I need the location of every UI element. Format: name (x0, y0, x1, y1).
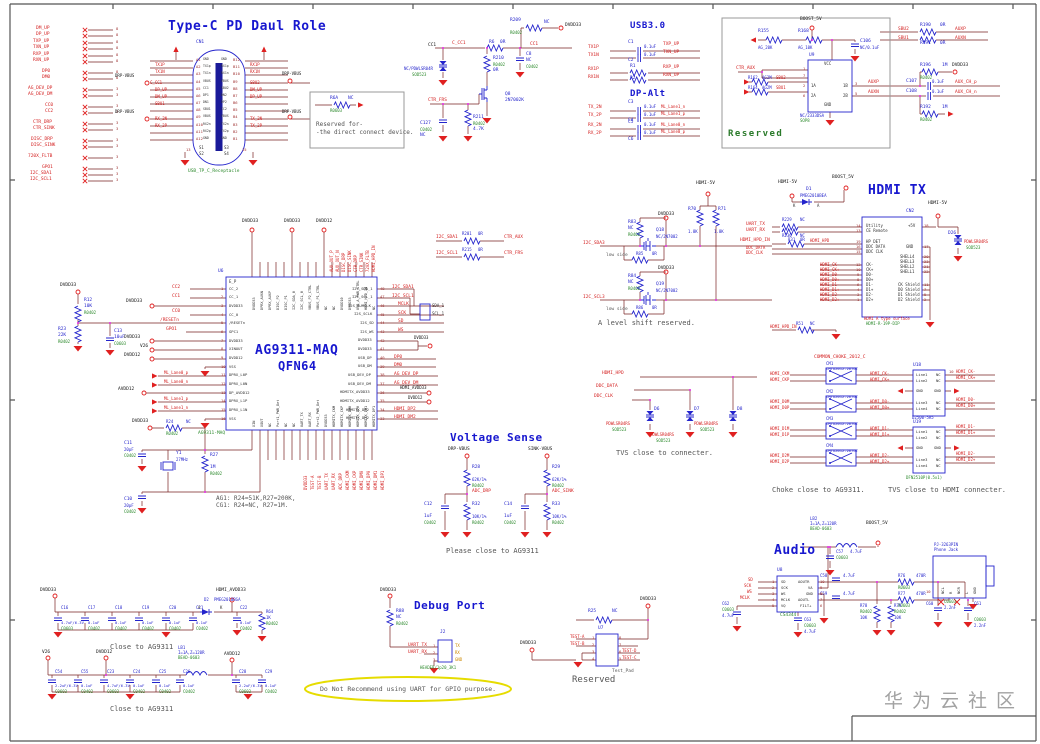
pin-name: L (965, 592, 969, 594)
pin-name: Port1_PWR_Det (277, 400, 281, 427)
pin-number: 47 (380, 295, 385, 299)
net-label: AUX_OUT_P (330, 250, 334, 272)
component-value: 0R (652, 252, 657, 256)
component-value: 1K (266, 616, 271, 620)
net-label: CC0 (172, 310, 180, 315)
refdes: R83 (628, 221, 636, 226)
net-label: COMMON_CHOKE_2012_C (814, 356, 865, 361)
refdes: R23 (58, 328, 66, 333)
net-label: DM0 (394, 364, 402, 369)
power-net-label: HDMI-5V (778, 181, 797, 186)
pin-name: GND (824, 103, 831, 107)
net-label: AUX_CH_p (955, 81, 977, 86)
pin-name: S1 (199, 146, 204, 150)
section-title: Type-C PD Daul Role (168, 20, 326, 33)
net-label: HDMI_CK+ (870, 378, 889, 382)
net-label: RX1N (250, 70, 260, 74)
net-label: HDMI_HPD_IN (372, 246, 376, 273)
net-label: AUXN (868, 91, 879, 96)
refdes: Q19 (656, 283, 664, 288)
pin-number: 2 (803, 84, 805, 88)
footprint-label: R0402 (860, 610, 872, 614)
section-title: HDMI TX (868, 184, 926, 197)
pin-number: 10 (926, 590, 931, 594)
pin-number: 16 (221, 417, 226, 421)
net-label: MCLK (740, 596, 750, 600)
pin-name: USB_DEV_DP (348, 373, 371, 377)
pin-name: NC (285, 423, 289, 427)
pin-number: 3 (116, 166, 118, 170)
component-value: 1.8K (714, 230, 724, 234)
refdes: R12 (84, 299, 92, 304)
refdes: R209 (510, 19, 521, 24)
pin-name: DVDD33 (253, 297, 257, 310)
pin-name: CC1 (203, 87, 209, 90)
net-label: DVDD33 (304, 476, 308, 490)
refdes: C29 (265, 670, 272, 674)
footprint-label: R0402 (920, 76, 932, 80)
pin-name: GND (806, 592, 813, 596)
power-net-label: DRP-VBUS (115, 110, 134, 114)
component-value: AG_10K (798, 46, 812, 50)
component-value: NC (348, 97, 353, 102)
component-value: NC (800, 218, 805, 222)
footprint-label: AG9311-MAQ (198, 432, 225, 437)
pin-number: 3 (855, 82, 857, 86)
component-value: 0R (652, 306, 657, 310)
component-value: NC (396, 616, 401, 621)
net-label: SBU2 (898, 28, 909, 33)
net-label: UART_TX (408, 644, 427, 649)
net-label: TX_2P (588, 114, 602, 119)
section-title: Audio (774, 544, 816, 557)
net-label: TEST-B (318, 476, 322, 490)
pin-number: 10 (820, 580, 825, 584)
net-label: DDC_DATA (596, 385, 618, 390)
refdes: C63 (804, 618, 811, 622)
component-value: 470R (916, 592, 926, 596)
refdes: R78 (860, 604, 867, 608)
pin-number: 6 (221, 330, 223, 334)
power-net-label: BOOST_5V (832, 176, 854, 181)
refdes: R71 (718, 208, 726, 213)
pin-name: CC2 (221, 108, 227, 111)
net-label: DISC_DRP (342, 253, 346, 272)
refdes: C22 (240, 606, 247, 610)
net-label: HDMI_D1M (770, 427, 789, 431)
net-label: CTR_DRP (354, 255, 358, 272)
pin-name: HDMITX_CKP (341, 406, 345, 427)
refdes: R215 (462, 248, 472, 252)
net-label: RX_2P (588, 132, 602, 137)
net-label: AG_DEV_DM (28, 93, 52, 98)
pin-number: 8 (619, 636, 621, 640)
note-text: Close to AG9311 (110, 706, 173, 713)
pin-name: NC (333, 306, 337, 310)
power-net-label: DVDD33 (380, 589, 396, 594)
component-value: 10K/1% (472, 515, 486, 519)
power-net-label: DVDD12 (408, 396, 422, 400)
refdes: D7 (694, 408, 699, 413)
pin-number: 8 (221, 347, 223, 351)
pin-number: 36 (380, 391, 385, 395)
pin-name: CC_1 (229, 295, 238, 299)
component-value: 0.1uF (169, 621, 180, 625)
refdes: C16 (61, 606, 68, 610)
footprint-label: R0402 (166, 432, 178, 436)
net-label: I2C_SCL3 (583, 296, 605, 301)
pin-name: HDMITX_DP0 (357, 406, 361, 427)
refdes: C14 (504, 503, 512, 508)
component-value: 1uF (424, 515, 432, 520)
pin-name: I2S_SCLK (354, 312, 372, 316)
power-net-label: DVDD12 (96, 651, 112, 656)
footprint-label: C0402 (81, 690, 93, 694)
section-title: DP-Alt (630, 90, 666, 99)
pin-number: 4 (592, 657, 594, 661)
footprint-label: C0402 (183, 690, 195, 694)
pin-number: 4 (772, 598, 774, 602)
net-label: ML_Lane0_p (164, 371, 188, 375)
net-label: SD (398, 320, 403, 325)
pin-number: 13 (221, 391, 226, 395)
net-label: TXP_UP (663, 43, 679, 48)
pin-name: Line1 (916, 373, 927, 377)
footprint-label: SOD523 (700, 428, 714, 432)
footprint-label: C0402 (240, 627, 252, 631)
net-label: ML_Lane1_p (661, 112, 685, 116)
component-value: 4.7uF (843, 592, 855, 596)
net-label: SCK (398, 312, 406, 317)
pin-number: 18 (924, 224, 929, 228)
footprint-label: C0402 (504, 521, 516, 525)
note-text: Please close to AG9311 (446, 548, 539, 555)
component-value: 62K/1% (552, 478, 566, 482)
net-label: CC1 (530, 43, 538, 48)
footprint-label: HDMI-R-19P-DIP (866, 322, 900, 326)
net-label: HDMI_D0P (770, 406, 789, 410)
pin-name: I2S_WS (360, 330, 374, 334)
pin-number: 2 (772, 586, 774, 590)
note-text: low side (606, 254, 628, 259)
footprint-label: R0402 (493, 63, 505, 67)
net-label: TX1P (588, 46, 599, 51)
refdes: R168 (798, 30, 809, 35)
net-label: HDMI_D0- (956, 398, 975, 402)
component-value: NC (628, 281, 633, 286)
refdes: C6 (628, 138, 633, 143)
footprint-label: SOD523 (612, 428, 626, 432)
pin-name: RX1p (221, 65, 229, 68)
note-text: TVS close to HDMI connecter. (888, 487, 1006, 494)
pin-name: RX1n (221, 72, 229, 75)
component-value: 0R (940, 24, 945, 29)
net-label: DISC_SINK (31, 144, 55, 149)
footprint-label: C0402 (124, 454, 136, 458)
pin-name: NCR (957, 587, 961, 594)
component-value: 10K (894, 616, 901, 620)
pin-name: Line1 (916, 430, 927, 434)
net-label: ADC_DRP (339, 473, 343, 490)
pin-name: 2A (811, 94, 816, 98)
net-label: DP_UP (155, 88, 167, 92)
component-value: 470R (916, 574, 926, 578)
pin-number: 34 (380, 408, 385, 412)
net-label: CC2 (172, 286, 180, 291)
pin-name: USB_DEV_DM (348, 382, 371, 386)
pin-number: A8 (196, 108, 201, 112)
net-label: RXN_UP (663, 74, 679, 79)
pin-number: B5 (233, 108, 238, 112)
component-value: 0R (478, 232, 483, 236)
footprint-label: R0402 (920, 118, 932, 122)
pin-number: 3 (116, 87, 118, 91)
net-label: DISC_SINK (348, 250, 352, 272)
pin-name: UART_TX (301, 412, 305, 427)
refdes: C61 (974, 602, 981, 606)
net-label: PDWLSR04RS (650, 433, 674, 437)
pin-number: B3 (233, 123, 238, 127)
pin-number: 3 (116, 144, 118, 148)
pin-name: DPRX_L1P (229, 399, 247, 403)
pin-name: SHELL1 (900, 270, 914, 274)
net-label: TXP_UP (33, 40, 49, 45)
pin-name: DISC_P2 (277, 295, 281, 310)
power-net-label: HDMI_AVDD33 (400, 386, 427, 390)
note-text: -the direct connect device. (316, 130, 414, 136)
net-label: AUXP (868, 81, 879, 86)
pin-name: DP2 (221, 101, 227, 104)
power-net-label: BOOST_5V (866, 522, 888, 527)
pin-number: B7 (233, 94, 238, 98)
pin-number: 6 (803, 94, 805, 98)
power-net-label: HDMI-5V (928, 202, 947, 207)
pin-number: 13 (186, 148, 191, 152)
pin-alias: TX (455, 644, 460, 648)
pin-name: SDA_1 (432, 304, 444, 308)
note-text: Do Not Recommend using UART for GPIO pur… (320, 686, 496, 693)
net-label: HDMI_D2M (770, 454, 789, 458)
component-value: AG2M (762, 76, 772, 80)
note-text: Close to AG9311 (110, 644, 173, 651)
footprint-label: C0402 (88, 627, 100, 631)
component-value: 20pF (124, 448, 134, 452)
refdes: R201 (462, 232, 472, 236)
pin-number: 5 (619, 657, 621, 661)
footprint-label: R0402 (210, 472, 222, 476)
pin-name: VBUS (203, 115, 211, 118)
pin-name: DVDD33 (358, 338, 372, 342)
net-label: HDMI_D1- (956, 425, 975, 429)
power-net-label: V26 (42, 651, 50, 656)
net-label: TXN_UP (33, 46, 49, 51)
pin-number: 8 (116, 46, 118, 50)
pin-name: NC (936, 430, 941, 434)
refdes: U9 (809, 54, 814, 59)
refdes: R1 (630, 65, 635, 70)
watermark: 华为云社区 (884, 692, 1024, 711)
pin-number: 9 (820, 586, 822, 590)
footprint-label: C0402 (169, 627, 181, 631)
refdes: C108 (906, 90, 917, 95)
net-label: CTR_DRP (33, 121, 52, 126)
pin-number: 1 (857, 298, 859, 302)
refdes: R85 (636, 252, 643, 256)
net-label: ML_Lane1_n (661, 105, 685, 109)
net-label: AG_DEV_DP (394, 373, 418, 378)
pin-name: GND (916, 389, 923, 393)
pin-name: NC (936, 407, 941, 411)
power-net-label: HDMI_AVDD33 (216, 589, 246, 594)
net-label: HDMI_CKM (346, 471, 350, 490)
pin-name: GND (221, 137, 227, 140)
pin-number: A11 (196, 130, 203, 134)
pin-name: NC (936, 401, 941, 405)
refdes: R88 (396, 610, 404, 615)
pin-name: HDMITX_DM0 (349, 406, 353, 427)
component-value: NC/0.1uF (860, 46, 879, 50)
pin-name: R (949, 592, 953, 594)
pin-name: UART_RX (309, 412, 313, 427)
section-title: AG9311-MAQ (255, 344, 338, 357)
pin-number: A6 (196, 94, 201, 98)
refdes: R51 (796, 322, 803, 326)
net-label: SBU2 (250, 81, 260, 85)
net-label: DM_UP (36, 27, 50, 32)
pin-number: B10 (233, 72, 240, 76)
power-net-label: DRP-VBUS (282, 110, 301, 114)
component-value: 2N7002K (505, 99, 524, 104)
power-net-label: DVDD33 (124, 336, 140, 341)
refdes: Q18 (656, 229, 664, 234)
pin-name: NC (936, 464, 941, 468)
footprint-label: C0603 (804, 624, 816, 628)
footprint-label: R0402 (552, 521, 564, 525)
net-label: UART_RX (408, 651, 427, 656)
pin-number: 33 (380, 417, 385, 421)
net-label: TEST-B (570, 642, 584, 646)
pin-name: VBUS (221, 80, 229, 83)
pin-number: 8 (820, 592, 822, 596)
pin-name: SBU1 (203, 108, 211, 111)
pin-number: 9 (221, 356, 223, 360)
pin-number: 3 (772, 592, 774, 596)
net-label: TXN_UP (663, 51, 679, 56)
component-value: 0.1uF (644, 123, 656, 127)
component-value: NC (186, 420, 191, 424)
refdes: C1 (628, 41, 633, 46)
footprint-label: HEADER/1p20_3K1 (420, 666, 456, 670)
pin-name: MCLK (781, 598, 790, 602)
pin-name: +5V (908, 224, 915, 228)
pin-name: HDMI_HPD_IN (365, 287, 369, 310)
footprint-label: R0603 (330, 109, 342, 113)
net-label: HDMI_DP0 (367, 471, 371, 490)
refdes: C107 (906, 80, 917, 85)
pin-number: 2 (221, 295, 223, 299)
refdes: C62 (722, 602, 729, 606)
power-net-label: DVDD33 (40, 589, 56, 594)
refdes: C55 (81, 670, 88, 674)
pin-name: K (793, 204, 795, 208)
power-net-label: DVDD12 (124, 354, 140, 359)
labels-layer: DM_UPDP_UPTXP_UPTXN_UPRXP_UPRXN_UPDP0DM0… (0, 0, 1040, 744)
net-label: AUXP (955, 28, 966, 33)
footprint-label: C0402 (526, 65, 538, 69)
pin-name: VBUS (221, 115, 229, 118)
component-value: 10K (84, 305, 92, 310)
pin-number: 3 (116, 93, 118, 97)
pin-name: TX1n (203, 72, 211, 75)
footprint-label: R0402 (58, 340, 70, 344)
power-net-label: DVDD33 (640, 598, 656, 603)
pin-name: D2 Shield (898, 298, 920, 302)
footprint-label: R0603 (898, 586, 910, 590)
net-label: HDMI_DP2 (394, 408, 416, 413)
pin-name: Line4 (916, 407, 927, 411)
pin-name: DVDD33 (229, 304, 243, 308)
component-value: NC/2N7002 (656, 235, 678, 239)
net-label: TEST-A (570, 635, 584, 639)
net-label: HDMI_HPD_IN (740, 239, 770, 244)
net-label: HDMI_D0+ (870, 406, 889, 410)
refdes: C8 (526, 53, 531, 58)
refdes: U8 (777, 569, 782, 574)
footprint-label: C0603 (55, 690, 67, 694)
power-net-label: DVDD33 (132, 420, 148, 425)
net-label: DP_UP (250, 95, 262, 99)
refdes: C23 (107, 670, 114, 674)
pin-name: E_P (229, 280, 236, 284)
component-value: 4.7uF (843, 574, 855, 578)
net-label: PDWLSR04RS (606, 422, 630, 426)
pin-number: A10 (196, 123, 203, 127)
component-value: AG_20K (758, 46, 772, 50)
note-text: Choke close to AG9311. (772, 487, 865, 494)
net-label: RXP_UP (663, 66, 679, 71)
component-value: 2.2uF/6.3V (55, 684, 78, 688)
component-value: 4.7uF/6.3V (107, 684, 130, 688)
section-title: Voltage Sense (450, 432, 543, 443)
pin-number: 3 (116, 138, 118, 142)
component-value: CMTU2012-2676T (826, 367, 858, 371)
net-label: HDMI_CK+ (956, 376, 975, 380)
component-value: 2.2nF (974, 624, 986, 628)
pin-number: 5 (855, 92, 857, 96)
component-value: 27MHz (176, 458, 188, 462)
refdes: C57 (836, 550, 843, 554)
pin-number: 1 (592, 636, 594, 640)
footprint-label: C0603 (944, 600, 956, 604)
pin-number: 8 (116, 40, 118, 44)
footprint-label: SOD523 (412, 73, 426, 77)
component-value: Phone Jack (934, 548, 958, 552)
net-label: HDMI_D0- (870, 400, 889, 404)
refdes: R76 (898, 574, 905, 578)
component-value: 0R (493, 69, 498, 74)
footprint-label: C0402 (159, 690, 171, 694)
component-value: 1M (942, 106, 947, 111)
power-net-label: AVDD12 (118, 388, 134, 393)
component-value: 0.1uF (81, 684, 92, 688)
net-label: CC0 (45, 104, 53, 109)
pin-number: 41 (380, 347, 385, 351)
pin-name: CC_2 (229, 287, 238, 291)
pin-name: AOUTL (798, 598, 809, 602)
refdes: D6 (654, 408, 659, 413)
refdes: R28 (472, 466, 480, 471)
footprint-label: C0603 (107, 690, 119, 694)
